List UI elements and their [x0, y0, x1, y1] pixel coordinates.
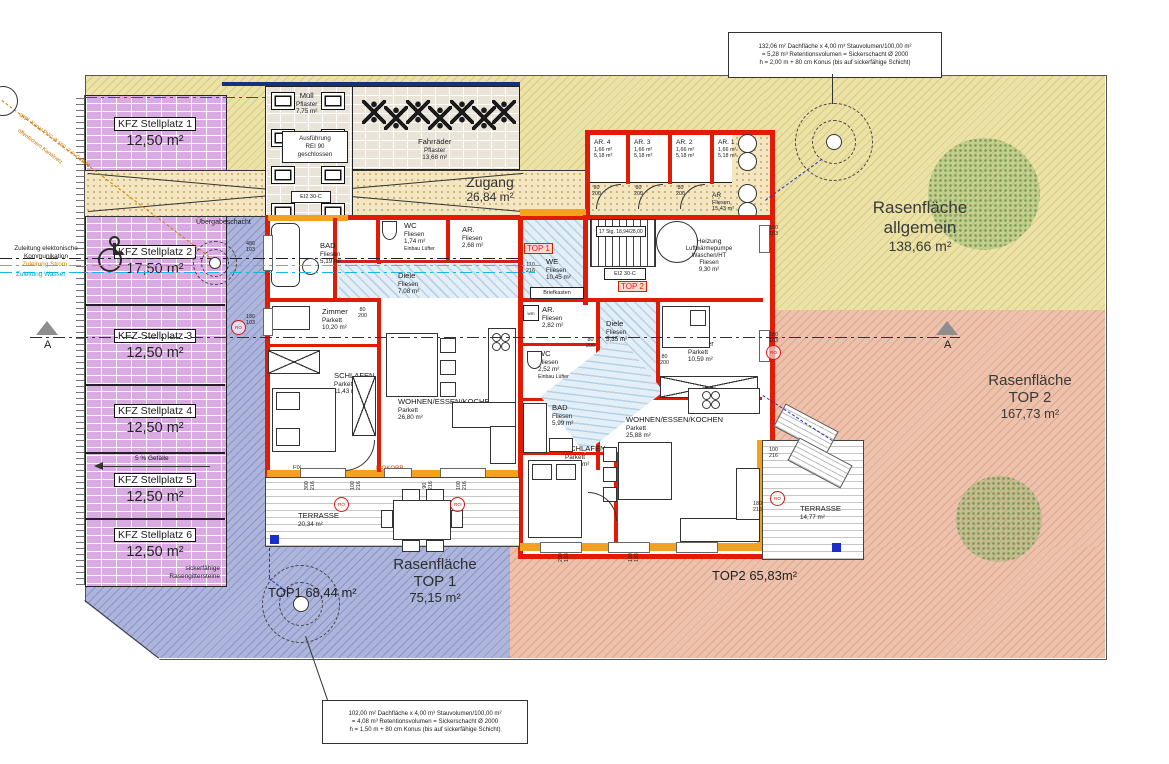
bike-stand-icon	[492, 100, 516, 124]
surface-note: sickerfähige Rasengittersteine	[95, 565, 220, 581]
stall-divider	[85, 518, 225, 520]
boiler	[738, 134, 757, 153]
strom-label: Zuleitung Strom	[22, 261, 67, 268]
kommunikation-label: Zuleitung elektonische Kommunikation	[4, 245, 88, 260]
waste-bin	[321, 92, 345, 110]
ar-wall	[710, 134, 714, 184]
top1-tag: TOP 1	[524, 243, 553, 254]
muell-label: Müll Pflaster 7,75 m²	[296, 92, 317, 116]
door-dim: 80200	[358, 308, 367, 319]
ro-marker: RO	[766, 345, 781, 360]
ar-wall	[626, 134, 630, 184]
surface-note-line1: sickerfähige	[95, 565, 220, 573]
terrasse-label-top1: TERRASSE 20,34 m²	[298, 512, 339, 528]
pillow	[532, 464, 552, 480]
stall-area: 12,50 m²	[126, 489, 183, 505]
wasser-line	[0, 272, 535, 273]
stove-burner	[492, 342, 501, 351]
washing-machine: wm	[523, 305, 539, 321]
wall	[376, 218, 380, 263]
wohnen-label-top2: WOHNEN/ESSEN/KOCHEN Parkett 25,88 m²	[626, 416, 723, 440]
bike-stand-icon	[384, 106, 408, 130]
ro-marker: RO	[770, 491, 785, 506]
ar-label-top2: AR. Fliesen 2,82 m²	[542, 306, 563, 330]
drain-box	[832, 543, 841, 552]
stall-name: KFZ Stellplatz 1	[114, 117, 196, 131]
chair	[603, 447, 617, 462]
pillow	[276, 392, 300, 410]
briefkasten: Briefkasten	[530, 287, 584, 299]
bad-label-top1: BAD Fliesen 5,19 m²	[320, 242, 341, 266]
door-dim: 80200	[676, 186, 685, 197]
window-dim: 200133	[559, 553, 570, 562]
rasenflaeche-top1-label: Rasenfläche TOP 1 75,15 m²	[355, 556, 515, 605]
rasenflaeche-allgemein-label: Rasenfläche allgemein 138,66 m²	[830, 198, 1010, 254]
stove-burner	[501, 342, 510, 351]
wc-label-top2: WC Fliesen 2,52 m² Einbau Lüfter	[538, 350, 569, 380]
stall-name: KFZ Stellplatz 4	[114, 404, 196, 418]
slope-label: 5 % Gefälle	[135, 455, 169, 462]
stall-area: 12,50 m²	[126, 345, 183, 361]
diele-label-top1: Diele Fliesen 7,08 m²	[398, 272, 419, 296]
ro-marker: RO	[231, 320, 246, 335]
bike-stand-icon	[428, 106, 452, 130]
surface-note-line2: Rasengittersteine	[95, 573, 220, 581]
desk	[272, 306, 310, 330]
stall-area: 12,50 m²	[126, 544, 183, 560]
property-edge-ticks	[76, 95, 85, 585]
kfz-stellplatz-6: KFZ Stellplatz 6 12,50 m²	[85, 522, 225, 566]
sofa	[452, 402, 516, 428]
stove-burner	[702, 391, 711, 400]
bathtub	[271, 223, 300, 287]
chair	[440, 382, 456, 397]
slope-arrow	[98, 466, 210, 467]
stall-name: KFZ Stellplatz 2	[114, 245, 196, 259]
door-dim: 80200	[660, 355, 669, 366]
water-line-top	[85, 97, 265, 98]
window-dim: 480103	[246, 242, 255, 253]
section-marker-left	[36, 321, 58, 335]
chair	[451, 510, 463, 528]
window-dim: 100216	[457, 481, 468, 490]
note-leader-right	[832, 74, 833, 104]
wall	[268, 298, 380, 302]
fire-door-label: EI2 30-C	[291, 191, 331, 203]
ar-room-4: AR. 4 1,66 m² 5,18 m³	[594, 139, 612, 160]
uebergabeschacht-pipe	[209, 257, 221, 269]
window	[608, 542, 650, 553]
section-line	[30, 337, 960, 338]
zugang-label: Zugang 26,84 m²	[400, 174, 580, 204]
rasenflaeche-top2-label: Rasenfläche TOP 2 167,73 m²	[950, 372, 1110, 421]
stall-area: 17,50 m²	[126, 261, 183, 277]
chair	[402, 540, 420, 552]
sink	[549, 438, 573, 452]
waste-bin	[271, 166, 295, 184]
terrasse-label-top2: TERRASSE 14,77 m²	[800, 505, 841, 521]
waste-bin	[321, 166, 345, 184]
boiler	[738, 152, 757, 171]
drain-box	[270, 535, 279, 544]
rain-line-bottom	[269, 548, 270, 578]
boiler	[738, 184, 757, 203]
ro-marker: RO	[450, 497, 465, 512]
ar-label-top1: AR. Fliesen 2,68 m²	[462, 226, 483, 250]
bike-stand-icon	[362, 100, 386, 124]
window-dim: 300216	[305, 481, 316, 490]
window-dim: 100216	[769, 448, 778, 459]
kfz-stellplatz-4: KFZ Stellplatz 4 12,50 m²	[85, 390, 225, 450]
pillow	[690, 310, 706, 326]
wardrobe-tall	[352, 376, 376, 436]
ar-hall-label: AR Fliesen 15,43 m²	[712, 192, 734, 213]
top1-ground-label: TOP1 68,44 m²	[268, 585, 357, 600]
kitchen-counter	[688, 388, 760, 414]
waste-bin	[271, 92, 295, 110]
slope-arrowhead	[94, 462, 103, 470]
ar-room-3: AR. 3 1,66 m² 5,18 m³	[634, 139, 652, 160]
chair	[381, 510, 393, 528]
stall-divider	[85, 304, 225, 306]
uebergabeschacht-label: Übergabeschacht	[196, 219, 251, 226]
top2-ground-label: TOP2 65,83m²	[712, 568, 797, 583]
fahrraeder-label: Fahrräder Pflaster 13,68 m²	[418, 138, 451, 162]
site-plan: KFZ Stellplatz 1 12,50 m² KFZ Stellplatz…	[0, 0, 1169, 764]
toilet	[527, 351, 542, 369]
entry-label: WE Fliesen 10,45 m²	[546, 258, 571, 282]
diele-label-top2: Diele Fliesen 5,35 m²	[606, 320, 627, 344]
diele-floor-top1	[339, 264, 518, 298]
window	[540, 542, 582, 553]
section-marker-right	[936, 321, 958, 335]
stove-burner	[711, 400, 720, 409]
window-dim: 180216	[753, 502, 762, 513]
ro-marker: RO	[334, 497, 349, 512]
zugang-area: 26,84 m²	[466, 190, 513, 204]
chair	[440, 360, 456, 375]
toilet	[382, 221, 397, 240]
bike-stand-icon	[406, 100, 430, 124]
retention-note-right: 132,06 m² Dachfläche x 4,00 m³ Stauvolum…	[728, 32, 942, 78]
ar-room-2: AR. 2 1,66 m² 5,18 m³	[676, 139, 694, 160]
chair	[603, 467, 617, 482]
door-dim: 80200	[586, 338, 595, 349]
window-dim: 90216	[423, 481, 434, 490]
stall-name: KFZ Stellplatz 5	[114, 473, 196, 487]
window	[263, 308, 273, 336]
entry-threshold	[520, 209, 586, 216]
wasser-label: Zuleitung Wasser	[16, 271, 66, 278]
wall	[446, 218, 450, 263]
window-dim: 100216	[351, 481, 362, 490]
dining-table	[386, 333, 438, 397]
door-dim: 80200	[634, 186, 643, 197]
stall-name: KFZ Stellplatz 3	[114, 329, 196, 343]
pillow	[556, 464, 576, 480]
bike-stand-icon	[450, 100, 474, 124]
sickerschacht-right-pipe	[826, 134, 842, 150]
pillow	[276, 428, 300, 446]
window	[676, 542, 718, 553]
kfz-stellplatz-5: KFZ Stellplatz 5 12,50 m²	[85, 462, 225, 516]
zugang-name: Zugang	[466, 174, 513, 190]
retention-note-bottom: 102,00 m² Dachfläche x 4,00 m³ Stauvolum…	[322, 700, 528, 744]
technik-label: Heizung Luftwärmepumpe Waschen/HT Fliese…	[663, 238, 755, 274]
door-dim: 80200	[592, 186, 601, 197]
stair-label: 17 Stg. 18,94/28,00	[596, 226, 646, 237]
wc-label-top1: WC Fliesen 1,74 m² Einbau Lüfter	[404, 222, 435, 252]
stove-burner	[711, 391, 720, 400]
zimmer-label-top1: Zimmer Parkett 10,20 m²	[322, 308, 348, 332]
strom-line	[0, 265, 545, 266]
wardrobe	[268, 350, 320, 374]
window-dim: 100103	[769, 226, 778, 237]
sofa	[490, 426, 516, 464]
ar-wall	[668, 134, 672, 184]
window-dim: 180103	[769, 333, 778, 344]
kfz-stellplatz-1: KFZ Stellplatz 1 12,50 m²	[85, 98, 225, 168]
chair	[426, 540, 444, 552]
stall-area: 12,50 m²	[126, 133, 183, 149]
stall-area: 12,50 m²	[126, 420, 183, 436]
rei-note: Ausführung REI 90 geschlossen	[282, 131, 348, 163]
fire-door-label: EI2 30-C	[604, 268, 646, 280]
chair	[402, 489, 420, 501]
bad-label-top2: BAD Fliesen 5,99 m²	[552, 404, 573, 428]
shower	[523, 403, 547, 453]
chair	[440, 338, 456, 353]
chair	[426, 489, 444, 501]
ar-room-1: AR. 1 1,66 m² 5,18 m³	[718, 139, 736, 160]
stall-name: KFZ Stellplatz 6	[114, 528, 196, 542]
stall-divider	[85, 452, 225, 454]
section-letter-right: A	[944, 339, 951, 351]
dining-table	[618, 442, 672, 500]
sofa	[680, 518, 760, 542]
stove-burner	[702, 400, 711, 409]
window-dim: 180103	[246, 315, 255, 326]
wall-light	[337, 260, 518, 263]
terrace-table	[393, 500, 451, 540]
section-letter-left: A	[44, 339, 51, 351]
top2-tag: TOP 2	[618, 281, 647, 292]
kfz-stellplatz-3: KFZ Stellplatz 3 12,50 m²	[85, 310, 225, 380]
stall-divider	[85, 384, 225, 386]
wall	[268, 344, 379, 347]
window-dim: 100133	[629, 553, 640, 562]
